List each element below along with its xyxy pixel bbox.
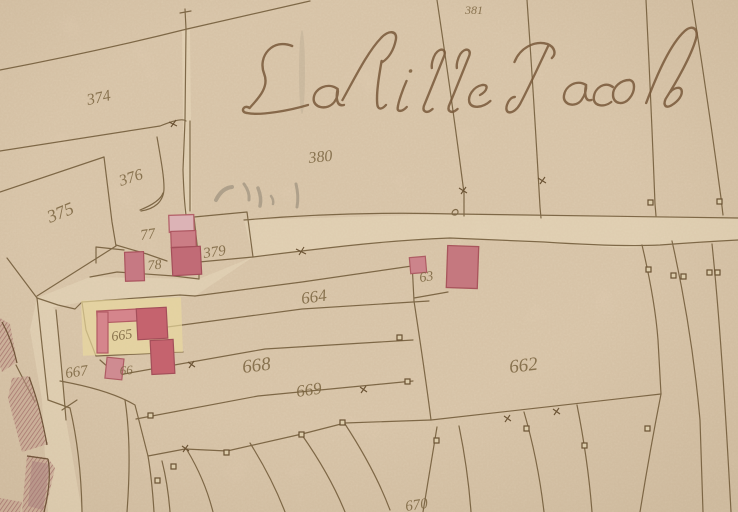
svg-text:66: 66 — [119, 362, 134, 378]
svg-text:668: 668 — [241, 354, 272, 378]
svg-text:78: 78 — [147, 258, 162, 274]
svg-text:379: 379 — [201, 243, 227, 262]
svg-text:380: 380 — [307, 148, 334, 168]
svg-text:63: 63 — [418, 269, 434, 286]
svg-text:667: 667 — [64, 363, 90, 382]
svg-text:381: 381 — [464, 3, 483, 17]
svg-text:664: 664 — [300, 286, 328, 308]
svg-text:670: 670 — [404, 496, 429, 512]
svg-text:669: 669 — [295, 379, 323, 401]
svg-text:665: 665 — [110, 327, 133, 345]
svg-text:662: 662 — [508, 354, 539, 378]
